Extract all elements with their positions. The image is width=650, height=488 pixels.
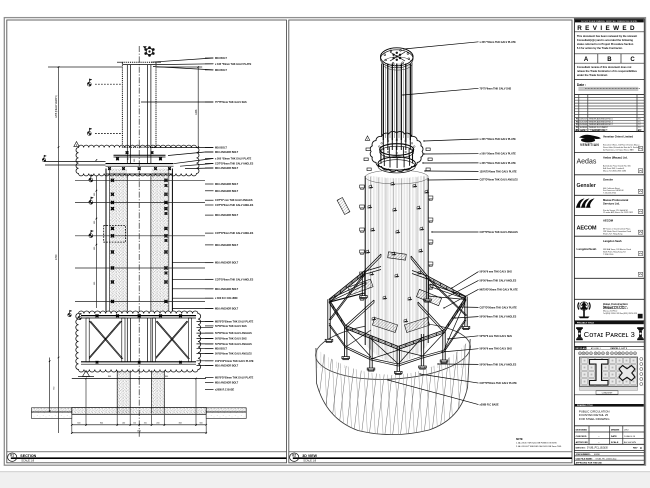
svg-text:CHECKED: CHECKED: [576, 436, 587, 438]
svg-text:M16 ANCHOR BOLT: M16 ANCHOR BOLT: [215, 214, 239, 217]
svg-text:Consultant review of this docu: Consultant review of this document does …: [577, 65, 632, 69]
svg-text:300: 300: [134, 159, 136, 162]
svg-text:2700: 2700: [55, 254, 58, 260]
svg-text:50*50*6 mm THK GALV SHS: 50*50*6 mm THK GALV SHS: [480, 335, 513, 338]
svg-text:M075*D*50mm THK GALV PLATE: M075*D*50mm THK GALV PLATE: [215, 321, 254, 324]
svg-text:C: C: [630, 57, 635, 63]
svg-text:DESIGNED: DESIGNED: [576, 430, 588, 432]
svg-text:200: 200: [122, 423, 125, 425]
svg-text:50*50*6mm THK GALV ANGLES: 50*50*6mm THK GALV ANGLES: [215, 343, 252, 346]
svg-text:90: 90: [128, 158, 130, 160]
svg-text:500: 500: [94, 193, 96, 196]
svg-text:AECOM: AECOM: [603, 218, 614, 222]
svg-text:COT*D*6mm THK GALV ANGLES: COT*D*6mm THK GALV ANGLES: [215, 232, 254, 235]
svg-text:APPROVED: APPROVED: [576, 441, 589, 444]
svg-text:CAD FILE NAME :: CAD FILE NAME :: [576, 457, 594, 460]
svg-text:LHO: LHO: [624, 430, 629, 432]
svg-text:x2080 R.C BASE: x2080 R.C BASE: [215, 389, 234, 392]
svg-text:600: 600: [200, 423, 203, 425]
svg-text:150*150*10mm THK GALV PLATE: 150*150*10mm THK GALV PLATE: [215, 360, 254, 363]
svg-text:M16 BOLT: M16 BOLT: [215, 69, 227, 72]
svg-text:AECOM: AECOM: [577, 226, 597, 232]
svg-text:1. ALL BOLT SHOULD BE FIXING: 1. ALL BOLT SHOULD BE FIXING ON SITE.: [516, 442, 558, 445]
svg-text:DRAWN: DRAWN: [611, 429, 620, 432]
svg-text:x 345 *50mm THK GALV PLATE: x 345 *50mm THK GALV PLATE: [480, 138, 517, 141]
svg-text:120*075*6mm THK GALV PLATE: 120*075*6mm THK GALV PLATE: [480, 170, 518, 173]
svg-text:COT*D*6mm THK GALV ANGLES: COT*D*6mm THK GALV ANGLES: [480, 231, 519, 234]
svg-text:DRAWING TITLE: DRAWING TITLE: [577, 404, 593, 407]
svg-text:150: 150: [133, 423, 136, 425]
svg-text:M16 ANCHOR BOLT: M16 ANCHOR BOLT: [215, 307, 239, 310]
svg-text:50*50*6mm THK GALV ANGLES: 50*50*6mm THK GALV ANGLES: [215, 332, 252, 335]
svg-text:Macau Tel: (853) 2833 1086: Macau Tel: (853) 2833 1086: [603, 170, 626, 172]
svg-text:DATE: DATE: [611, 435, 617, 438]
svg-text:Cᴏᴛᴀɪ Pᴀʀᴄᴇʟ 3: Cᴏᴛᴀɪ Pᴀʀᴄᴇʟ 3: [584, 330, 635, 339]
svg-text:SCALE: SCALE: [611, 441, 619, 444]
svg-text:50*50*6mm THK GALV SHS: 50*50*6mm THK GALV SHS: [215, 325, 247, 328]
svg-text:COT*D* mm THK GALV ANGLES: COT*D* mm THK GALV ANGLES: [215, 199, 253, 202]
svg-text:Tel:(853) 28700 328 Fax:(853): Tel:(853) 28700 328 Fax:(853) 28700 329: [603, 313, 637, 315]
svg-text:T 415.433.3700: T 415.433.3700: [603, 193, 616, 195]
svg-text:P5: P5: [576, 118, 578, 120]
svg-text:relieve the Trade Contractor o: relieve the Trade Contractor of its resp…: [577, 69, 638, 73]
svg-text:Aedas: Aedas: [577, 159, 597, 166]
svg-text:under the Trade Contract.: under the Trade Contract.: [577, 73, 608, 77]
svg-text:SCALE 1:8: SCALE 1:8: [21, 459, 34, 463]
svg-text:M16 ANCHOR BOLT: M16 ANCHOR BOLT: [215, 288, 239, 291]
svg-text:This document has been reviewe: This document has been reviewed by the r…: [577, 34, 637, 38]
svg-text:75*75*6mm THK GALV SHS: 75*75*6mm THK GALV SHS: [480, 87, 512, 90]
svg-text:844: 844: [179, 423, 182, 425]
svg-text:M16 ANCHOR BOLT: M16 ANCHOR BOLT: [215, 190, 239, 193]
svg-text:50*50*6mm THK GALV ANGLES: 50*50*6mm THK GALV ANGLES: [215, 352, 252, 355]
svg-text:TENDER ADDENDUM NO.2: TENDER ADDENDUM NO.2: [589, 123, 613, 126]
svg-text:x 500 *50mm THK GALV PLATE: x 500 *50mm THK GALV PLATE: [480, 153, 517, 156]
svg-text:1288 (FIELD VERIFY): 1288 (FIELD VERIFY): [56, 95, 58, 118]
svg-text:COT*D*6mm THK GALV ANGLES: COT*D*6mm THK GALV ANGLES: [215, 204, 254, 207]
svg-text:75*75*6mm THK GALV SHS: 75*75*6mm THK GALV SHS: [215, 101, 247, 104]
svg-text:03/11/09: 03/11/09: [580, 118, 587, 120]
svg-text:01: 01: [10, 453, 14, 457]
svg-text:M16 BOLT: M16 BOLT: [215, 147, 227, 150]
svg-text:Gensler: Gensler: [603, 178, 613, 182]
svg-text:M16 BOLT: M16 BOLT: [215, 348, 227, 351]
svg-text:M075*D*50mm THK GALV PLATE: M075*D*50mm THK GALV PLATE: [480, 288, 519, 291]
svg-text:NOTE:: NOTE:: [516, 439, 523, 441]
svg-text:M16 ANCHOR BOLT: M16 ANCHOR BOLT: [215, 365, 239, 368]
svg-text:500: 500: [94, 247, 96, 250]
svg-text:x2080 R.C BASE: x2080 R.C BASE: [480, 404, 499, 407]
svg-text:Langdon Seah: Langdon Seah: [603, 239, 622, 243]
svg-text:05/09/09: 05/09/09: [580, 124, 587, 126]
svg-text:Consultant(s)(s) and is accord: Consultant(s)(s) and is accorded the fol…: [577, 38, 633, 42]
svg-text:x 300 R.C COLUMN: x 300 R.C COLUMN: [215, 297, 238, 300]
svg-text:Services Ltd.: Services Ltd.: [603, 202, 620, 206]
svg-text:COT*D*50mm THK GALV PLATE: COT*D*50mm THK GALV PLATE: [480, 382, 518, 385]
svg-text:AS SHOWN: AS SHOWN: [624, 441, 636, 444]
svg-text:844: 844: [108, 376, 111, 378]
svg-text:x 345 *50mm THK GALV PLATE: x 345 *50mm THK GALV PLATE: [480, 41, 517, 44]
svg-text:50*50*6mm THK GALV ANGLES: 50*50*6mm THK GALV ANGLES: [480, 363, 517, 366]
svg-text:x 500 *50mm THK GALV PLATE: x 500 *50mm THK GALV PLATE: [215, 158, 252, 161]
svg-text:200: 200: [156, 423, 159, 425]
svg-text:2950: 2950: [137, 431, 141, 433]
svg-text:M16 ANCHOR BOLT: M16 ANCHOR BOLT: [215, 183, 239, 186]
svg-text:M075*D*50mm THK GALV PLATE: M075*D*50mm THK GALV PLATE: [215, 377, 254, 380]
svg-text:600: 600: [77, 423, 80, 425]
svg-text:Aedas (Macau) Ltd.: Aedas (Macau) Ltd.: [603, 155, 628, 159]
svg-text:M16 ANCHOR BOLT: M16 ANCHOR BOLT: [215, 262, 239, 265]
svg-text:500: 500: [94, 282, 96, 285]
svg-text:DWG NO :: DWG NO :: [576, 448, 587, 450]
svg-text:status referred to in Projec: status referred to in Project Procedure …: [577, 42, 634, 46]
svg-text:Gensler: Gensler: [577, 183, 596, 189]
svg-text:M16 ANCHOR BOLT: M16 ANCHOR BOLT: [215, 381, 239, 384]
svg-text:150: 150: [144, 423, 147, 425]
svg-text:844: 844: [100, 423, 103, 425]
svg-text:500: 500: [94, 221, 96, 224]
svg-text:50*50*6mm THK GALV ANGLES: 50*50*6mm THK GALV ANGLES: [480, 279, 517, 282]
svg-text:Venetian Orient Limited: Venetian Orient Limited: [603, 134, 633, 138]
svg-text:50*50*6 mm THK GALV SHS: 50*50*6 mm THK GALV SHS: [480, 348, 513, 351]
svg-text:M16 ANCHOR BOLT: M16 ANCHOR BOLT: [215, 167, 239, 170]
svg-text:3D VIEW: 3D VIEW: [302, 454, 317, 458]
svg-text:T 2830 3500: T 2830 3500: [603, 254, 613, 256]
svg-text:A: A: [584, 57, 589, 63]
svg-text:50*50*6 mm THK GALV SHS: 50*50*6 mm THK GALV SHS: [480, 271, 513, 274]
svg-text:APPROVED FOR THE USE: APPROVED FOR THE USE: [576, 462, 603, 465]
svg-text:VENETIAN: VENETIAN: [580, 143, 599, 147]
svg-text:12 andar A-B, Macau Tel: 2878: 12 andar A-B, Macau Tel: 2878 2822: [603, 211, 633, 214]
svg-text:M16 ANCHOR BOLT: M16 ANCHOR BOLT: [215, 244, 239, 247]
svg-text:SECTION: SECTION: [20, 454, 36, 458]
svg-text:da Esperanca, s/n Taipa, Macau: da Esperanca, s/n Taipa, Macau SAR: [603, 148, 634, 151]
svg-text:LangdonSeah: LangdonSeah: [577, 247, 597, 251]
svg-text:Macau Professional: Macau Professional: [603, 198, 628, 202]
svg-text:Shatin, N.T. Hong Kong: Shatin, N.T. Hong Kong: [603, 232, 622, 235]
svg-text:02: 02: [292, 453, 296, 457]
svg-text:5.4 for action by the Trade Co: 5.4 for action by the Trade Contractor.: [577, 46, 623, 50]
svg-text:50*50*6mm THK GALV SHS: 50*50*6mm THK GALV SHS: [215, 338, 247, 341]
svg-text:COTAI STRIP: COTAI STRIP: [602, 391, 613, 394]
svg-text:14-AUG-10: 14-AUG-10: [624, 435, 636, 438]
svg-text:REVIEWED: REVIEWED: [577, 25, 638, 32]
svg-text:FOR STEEL DRAWING: FOR STEEL DRAWING: [579, 417, 610, 421]
svg-text:PROJECT TITLE: PROJECT TITLE: [577, 323, 595, 325]
svg-text:REV: REV: [633, 448, 638, 450]
svg-text:TENDER ADDENDUM NO.4: TENDER ADDENDUM NO.4: [589, 120, 613, 123]
svg-text:05/10/09: 05/10/09: [580, 121, 587, 123]
svg-text:COT*D*6mm THK GALV ANGLES: COT*D*6mm THK GALV ANGLES: [480, 179, 519, 182]
svg-text:1288: 1288: [195, 109, 198, 115]
svg-text:SCALE 1:8: SCALE 1:8: [303, 459, 316, 463]
svg-text:2. ALL FILLET WELDED SHOULD B: 2. ALL FILLET WELDED SHOULD BE 3mm THK.: [516, 445, 562, 448]
svg-text:M16 ANCHOR BOLT: M16 ANCHOR BOLT: [215, 151, 239, 154]
svg-text:M16 BOLT: M16 BOLT: [215, 57, 227, 60]
svg-text:x 345 *50mm THK GALV PLATE: x 345 *50mm THK GALV PLATE: [480, 162, 517, 165]
svg-text:COT*D*50mm THK GALV PLATE: COT*D*50mm THK GALV PLATE: [480, 306, 518, 309]
svg-text:844: 844: [165, 376, 168, 378]
svg-text:B: B: [607, 57, 612, 63]
svg-text:COT*D*6mm THK GALV ANGLES: COT*D*6mm THK GALV ANGLES: [215, 278, 254, 281]
svg-text:P3: P3: [576, 124, 578, 126]
svg-text:50*50*6mm THK GALV ANGLES: 50*50*6mm THK GALV ANGLES: [480, 316, 517, 319]
svg-text:Date :: Date :: [577, 83, 586, 87]
svg-text:COT*D*6mm THK GALV ANGLES: COT*D*6mm THK GALV ANGLES: [215, 163, 254, 166]
svg-text:DO NOT SCALE DRAWING. VERIFY A: DO NOT SCALE DRAWING. VERIFY ALL DIMENSI…: [581, 20, 638, 23]
svg-text:5YUB_PCL_B(0)30: 5YUB_PCL_B(0)30: [587, 447, 608, 450]
svg-text:x 345 *50mm THK GALV PLATE: x 345 *50mm THK GALV PLATE: [215, 63, 252, 66]
svg-text:TENDER ADDENDUM NO.6: TENDER ADDENDUM NO.6: [589, 117, 613, 120]
